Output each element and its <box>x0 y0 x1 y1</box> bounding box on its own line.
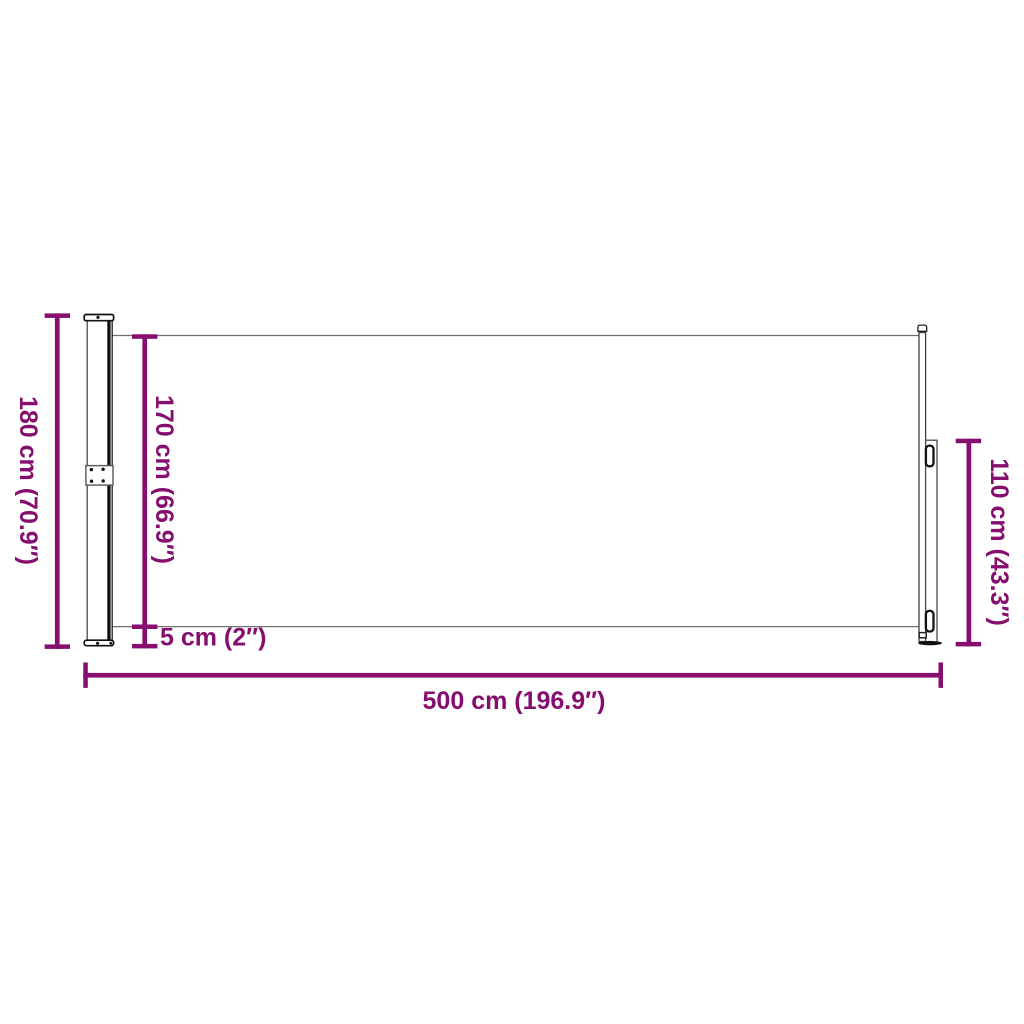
svg-text:170 cm (66.9″): 170 cm (66.9″) <box>150 395 178 564</box>
svg-text:110 cm (43.3″): 110 cm (43.3″) <box>985 458 1013 626</box>
svg-text:500 cm (196.9″): 500 cm (196.9″) <box>423 687 606 715</box>
svg-text:180 cm (70.9″): 180 cm (70.9″) <box>14 396 42 565</box>
svg-text:5 cm (2″): 5 cm (2″) <box>160 623 266 651</box>
